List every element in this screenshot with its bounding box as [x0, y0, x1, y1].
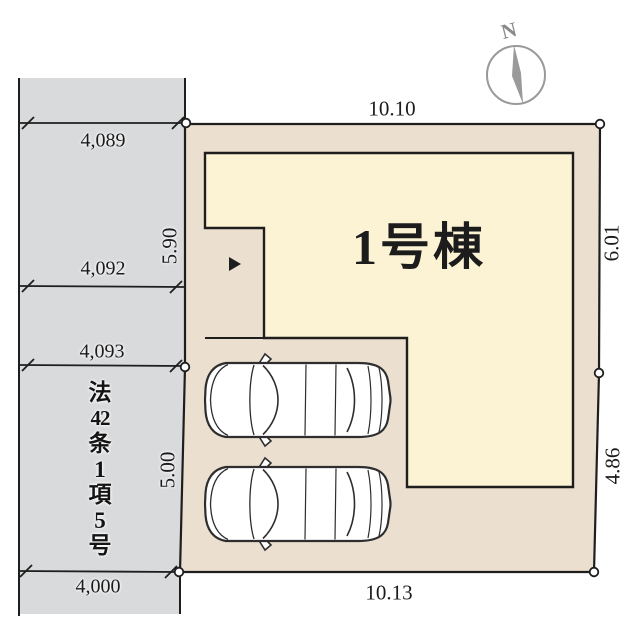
dimension-top: 10.10 — [368, 97, 415, 122]
road-width-label-2: 4,092 — [81, 258, 126, 281]
law-char: 1 — [94, 456, 106, 482]
car-2 — [205, 458, 390, 550]
dimension-left-upper: 5.90 — [158, 228, 183, 265]
plot-plan: N 1号棟 10.10 10.13 5.90 5.00 6.01 4.86 4,… — [0, 0, 640, 640]
compass-icon — [487, 45, 545, 104]
dimension-right-upper: 6.01 — [600, 225, 625, 262]
law-char: 条 — [89, 431, 112, 457]
law-char: 号 — [89, 533, 112, 559]
road-width-label-3: 4,093 — [80, 341, 125, 364]
building-label: 1号棟 — [352, 207, 486, 279]
dimension-right-lower: 4.86 — [601, 448, 626, 485]
law-char: 項 — [89, 482, 112, 508]
car-1 — [205, 354, 390, 446]
law-char: 5 — [94, 507, 106, 533]
road-law-label: 法 42 条 1 項 5 号 — [89, 380, 112, 559]
road-width-label-1: 4,089 — [81, 130, 126, 153]
road-width-label-4: 4,000 — [76, 576, 121, 599]
law-char: 42 — [91, 405, 110, 431]
law-char: 法 — [89, 380, 112, 406]
dimension-left-lower: 5.00 — [156, 452, 181, 489]
dimension-bottom: 10.13 — [365, 581, 412, 606]
